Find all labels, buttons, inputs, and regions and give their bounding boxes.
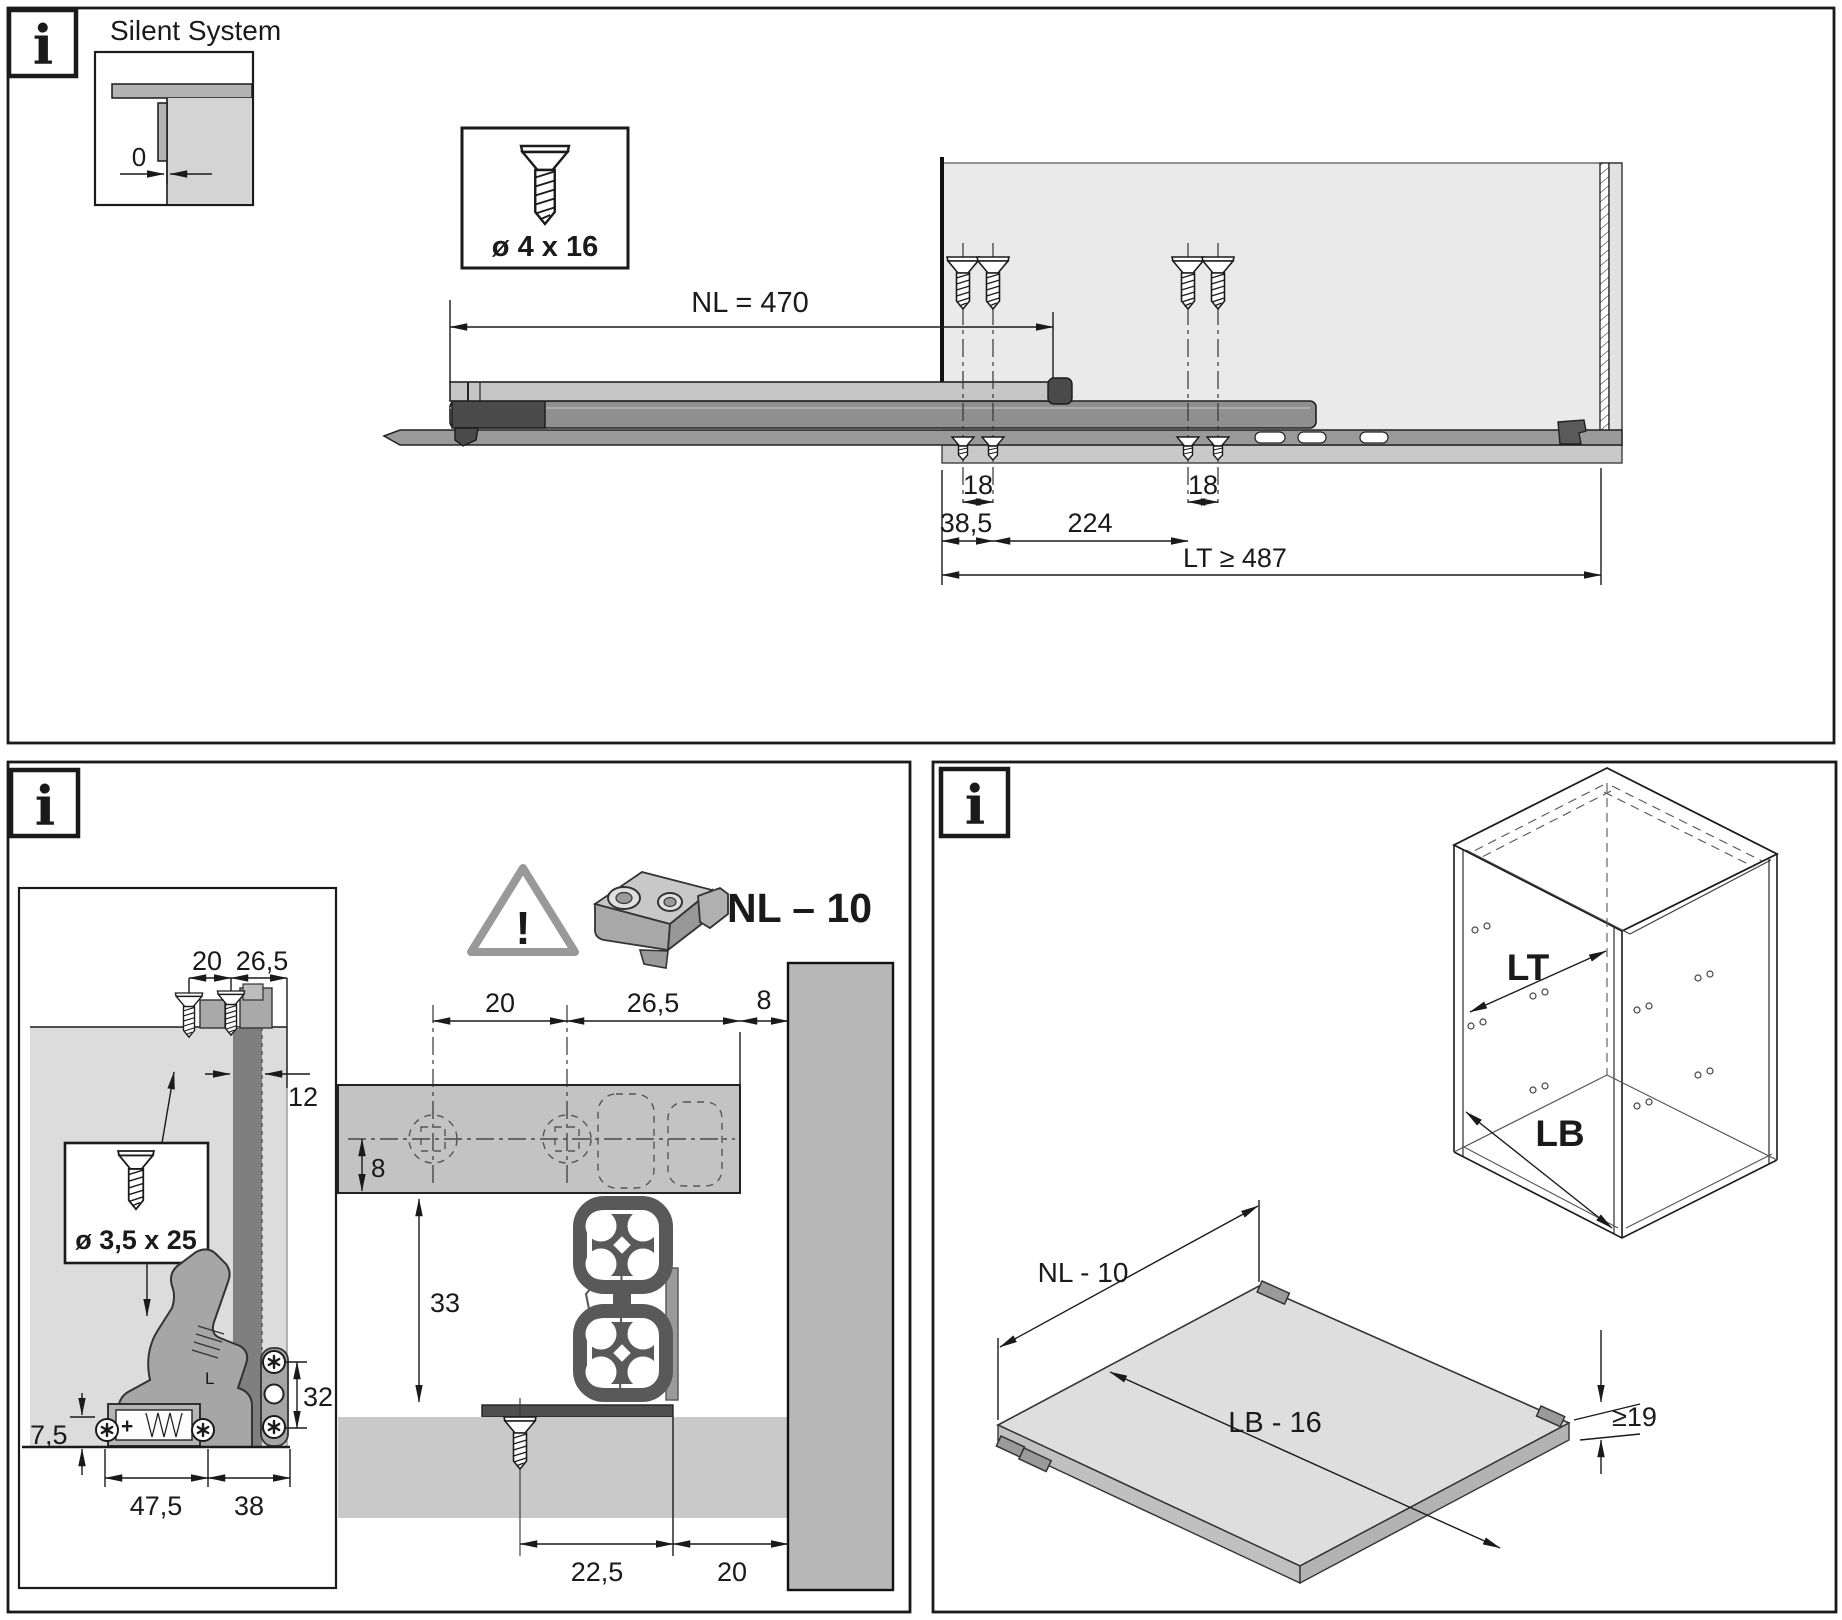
bottom-left-panel: i 20 26,5 bbox=[8, 762, 910, 1612]
dim-label: LB bbox=[1535, 1113, 1584, 1154]
dim-label: 33 bbox=[430, 1288, 460, 1318]
dim-label: 32 bbox=[303, 1382, 333, 1412]
length-note-label: NL – 10 bbox=[727, 885, 872, 931]
dim-label: 7,5 bbox=[30, 1420, 68, 1450]
dim-label: ≥19 bbox=[1612, 1402, 1657, 1432]
dim-label: 38,5 bbox=[940, 508, 993, 538]
dim-label: NL = 470 bbox=[691, 287, 808, 319]
dim-label: 20 bbox=[717, 1557, 747, 1587]
cabinet-front-edge bbox=[940, 157, 944, 385]
dim-label: 22,5 bbox=[571, 1557, 624, 1587]
dim-label: 224 bbox=[1067, 508, 1112, 538]
installation-drawing: i Silent System 0 ø 4 x 16 bbox=[0, 0, 1842, 1620]
dim-label: 12 bbox=[288, 1082, 318, 1112]
top-panel: i Silent System 0 ø 4 x 16 bbox=[8, 8, 1834, 743]
cabinet-side-section bbox=[167, 98, 252, 204]
back-panel-mounting-view: 20 26,5 12 ø 3,5 x 25 L bbox=[19, 888, 336, 1588]
adjuster-marking: + bbox=[121, 1415, 133, 1438]
part-marking: L bbox=[205, 1369, 214, 1388]
screw-spec-label: ø 4 x 16 bbox=[492, 231, 598, 263]
stop-block bbox=[1048, 378, 1072, 404]
drawing-canvas: i Silent System 0 ø 4 x 16 bbox=[0, 0, 1842, 1620]
dim-label: LB - 16 bbox=[1228, 1407, 1322, 1439]
section-title: Silent System bbox=[110, 15, 281, 46]
middle-rail bbox=[450, 401, 1316, 428]
dim-label: 8 bbox=[371, 1153, 385, 1183]
info-icon: i bbox=[33, 13, 54, 77]
torx-screw-icon bbox=[263, 1351, 285, 1373]
base-plate bbox=[482, 1405, 673, 1417]
back-panel-hatch bbox=[1600, 163, 1609, 445]
dimension-18-rear: 18 bbox=[1188, 470, 1218, 502]
plate-hole bbox=[265, 1385, 284, 1404]
screw-spec-label: ø 3,5 x 25 bbox=[75, 1225, 197, 1255]
cabinet-bottom-board bbox=[942, 445, 1622, 463]
front-rail-edge bbox=[158, 103, 167, 161]
back-panel bbox=[1609, 163, 1622, 445]
info-icon: i bbox=[35, 774, 56, 838]
dim-label: 20 bbox=[485, 988, 515, 1018]
bottom-right-panel: i bbox=[933, 762, 1836, 1612]
screw-spec-box: ø 3,5 x 25 bbox=[65, 1143, 208, 1263]
dim-label: 26,5 bbox=[627, 988, 680, 1018]
cabinet-top-edge bbox=[112, 84, 252, 98]
dimension-18-front: 18 bbox=[963, 470, 993, 502]
screw-spec-box: ø 4 x 16 bbox=[462, 128, 628, 268]
zero-gap-detail: 0 bbox=[95, 52, 253, 205]
dim-label: LT bbox=[1507, 947, 1550, 988]
dim-label: 18 bbox=[1188, 470, 1218, 500]
dim-label: 26,5 bbox=[236, 946, 289, 976]
dim-label: 38 bbox=[234, 1491, 264, 1521]
warning-exclamation: ! bbox=[515, 902, 530, 954]
info-icon: i bbox=[965, 773, 986, 837]
dim-label: 20 bbox=[192, 946, 222, 976]
zero-gap-label: 0 bbox=[132, 142, 146, 172]
dim-label: 18 bbox=[963, 470, 993, 500]
cabinet-back-wall bbox=[788, 963, 893, 1590]
dim-label: NL - 10 bbox=[1038, 1257, 1129, 1288]
front-bracket bbox=[452, 401, 545, 428]
dim-label: 8 bbox=[756, 985, 771, 1015]
torx-screw-icon bbox=[96, 1419, 118, 1441]
cabinet-bottom-board bbox=[338, 1417, 788, 1518]
dim-label: 47,5 bbox=[130, 1491, 183, 1521]
dimension-26-5-top: 26,5 bbox=[231, 946, 288, 978]
torx-screw-icon bbox=[192, 1419, 214, 1441]
torx-screw-icon bbox=[263, 1416, 285, 1438]
dim-label: LT ≥ 487 bbox=[1183, 543, 1287, 573]
